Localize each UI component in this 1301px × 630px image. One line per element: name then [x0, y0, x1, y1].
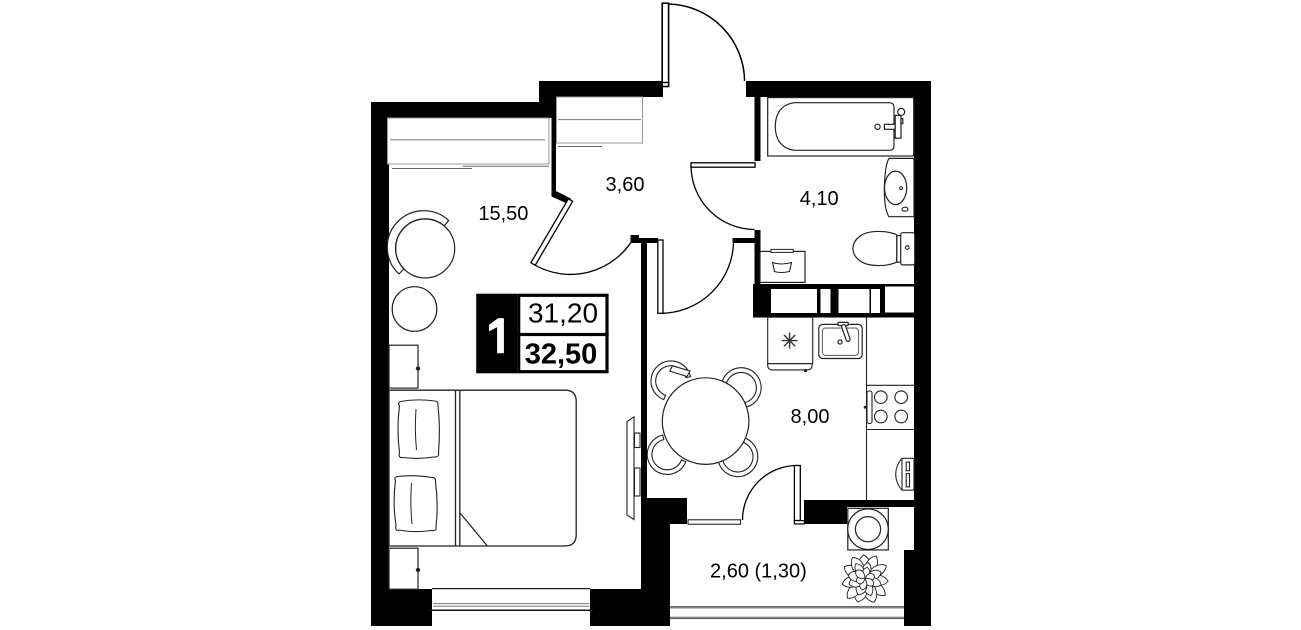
- svg-text:4,10: 4,10: [800, 188, 839, 210]
- svg-text:15,50: 15,50: [478, 203, 528, 225]
- svg-text:8,00: 8,00: [791, 406, 830, 428]
- svg-text:2,60 (1,30): 2,60 (1,30): [710, 560, 807, 582]
- svg-text:3,60: 3,60: [606, 174, 645, 196]
- svg-text:32,50: 32,50: [525, 339, 598, 371]
- svg-text:31,20: 31,20: [528, 298, 598, 329]
